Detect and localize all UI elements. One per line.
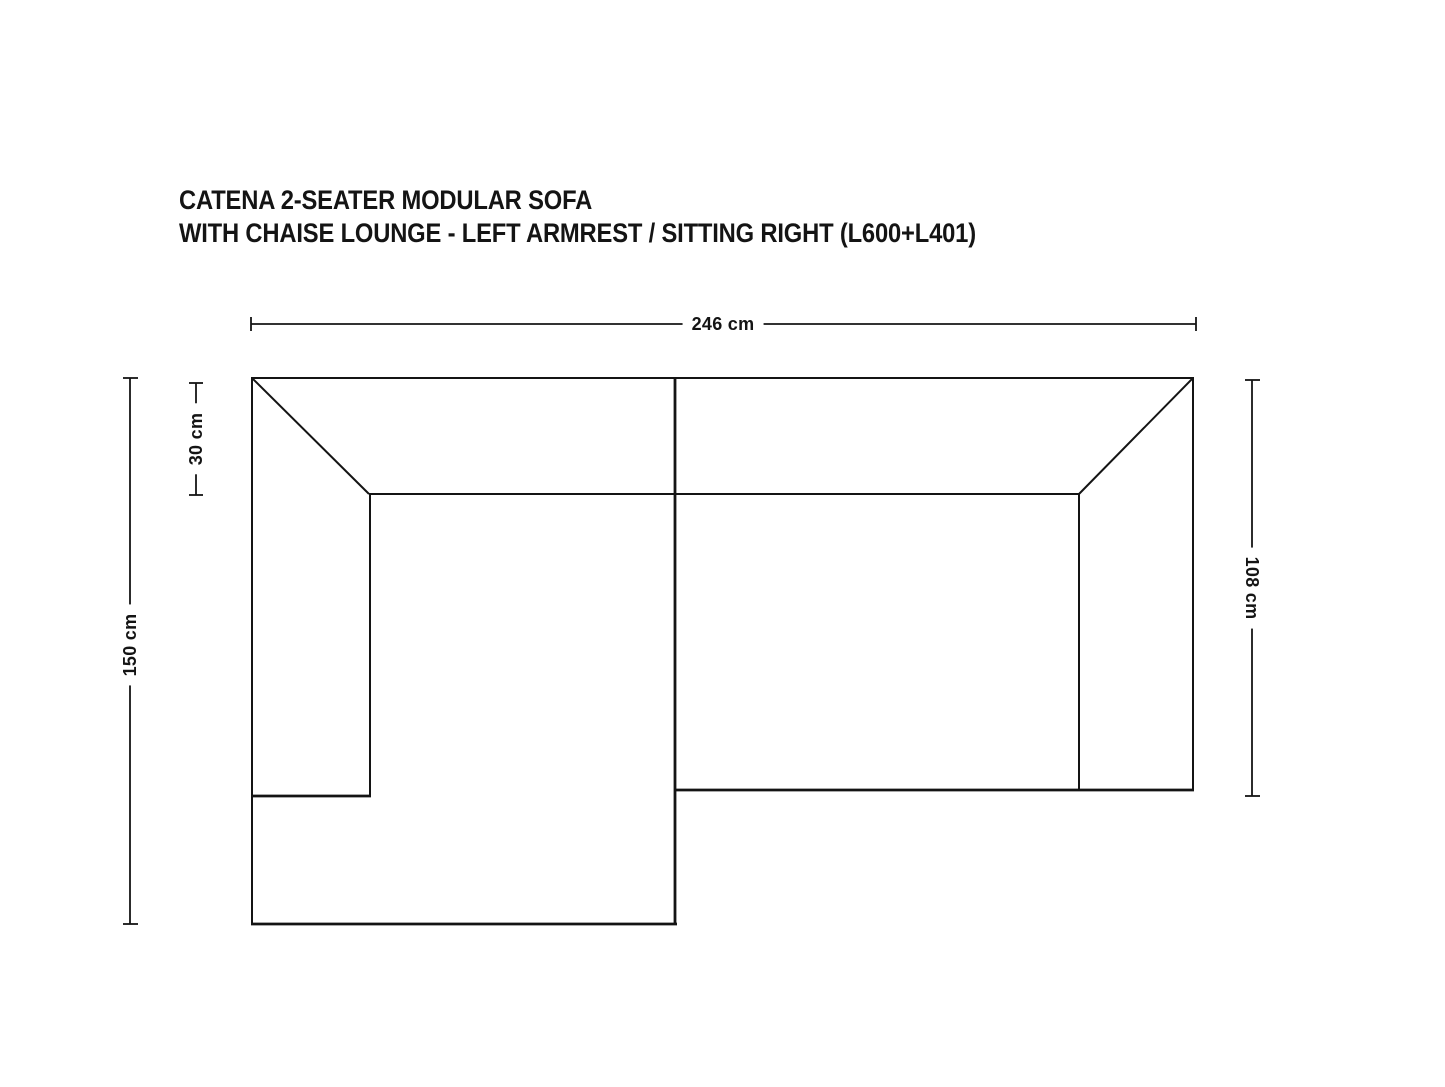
left-miter-diagonal <box>252 378 369 494</box>
dim-right-depth-label: 108 cm <box>1241 548 1263 629</box>
dimension-lines <box>123 317 1260 924</box>
page: CATENA 2-SEATER MODULAR SOFA WITH CHAISE… <box>0 0 1445 1087</box>
dim-depth-label: 150 cm <box>119 605 141 686</box>
sofa-outline <box>251 378 1194 924</box>
right-miter-diagonal <box>1079 378 1193 494</box>
sofa-front-edges <box>251 378 1194 924</box>
dim-width-label: 246 cm <box>683 313 764 335</box>
sofa-diagram <box>0 0 1445 1087</box>
dim-backrest-label: 30 cm <box>185 404 207 475</box>
sofa-inner-lines <box>252 378 1193 796</box>
